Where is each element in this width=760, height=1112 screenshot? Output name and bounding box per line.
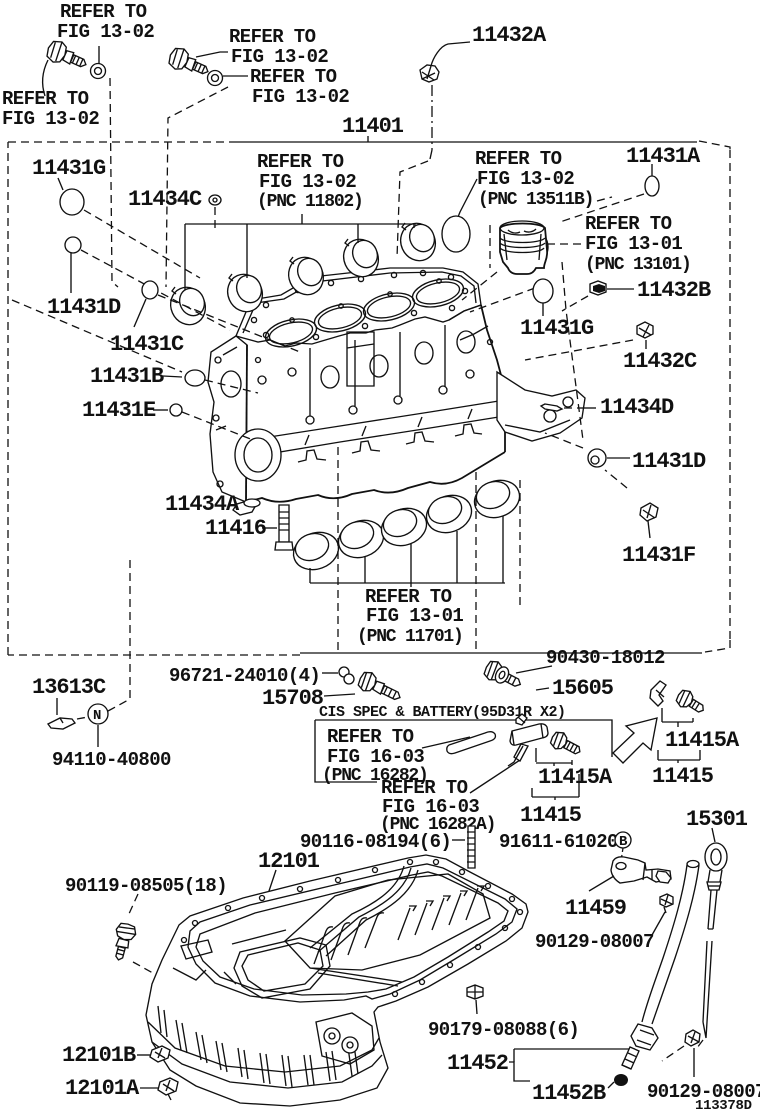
svg-text:96721-24010(4): 96721-24010(4) <box>169 665 320 687</box>
svg-text:REFER TO: REFER TO <box>327 726 414 748</box>
svg-text:11431D: 11431D <box>47 295 121 320</box>
svg-text:11431A: 11431A <box>626 144 701 169</box>
svg-text:REFER TO: REFER TO <box>60 1 147 23</box>
svg-text:11431G: 11431G <box>32 156 106 181</box>
svg-text:12101A: 12101A <box>65 1076 140 1101</box>
svg-text:FIG 13-02: FIG 13-02 <box>259 171 356 193</box>
svg-text:11401: 11401 <box>342 114 404 139</box>
svg-text:90430-18012: 90430-18012 <box>546 647 665 669</box>
svg-text:11432A: 11432A <box>472 23 547 48</box>
svg-text:11431F: 11431F <box>622 543 695 568</box>
svg-text:(PNC 13511B): (PNC 13511B) <box>478 190 593 210</box>
svg-text:11434D: 11434D <box>600 395 674 420</box>
svg-text:11415: 11415 <box>520 803 582 828</box>
svg-text:11432C: 11432C <box>623 349 697 374</box>
svg-text:11431B: 11431B <box>90 364 164 389</box>
svg-text:11415A: 11415A <box>538 765 613 790</box>
svg-text:REFER TO: REFER TO <box>2 88 89 110</box>
svg-text:(PNC 13101): (PNC 13101) <box>585 255 691 275</box>
svg-text:11459: 11459 <box>565 896 626 921</box>
svg-text:REFER TO: REFER TO <box>250 66 337 88</box>
svg-text:(PNC 11802): (PNC 11802) <box>257 192 363 212</box>
svg-text:13613C: 13613C <box>32 675 106 700</box>
svg-text:11452: 11452 <box>447 1051 508 1076</box>
svg-text:11415A: 11415A <box>665 728 740 753</box>
svg-text:FIG 13-01: FIG 13-01 <box>366 605 463 627</box>
svg-text:11416: 11416 <box>205 516 266 541</box>
svg-text:FIG 13-02: FIG 13-02 <box>477 168 574 190</box>
svg-text:FIG 13-02: FIG 13-02 <box>252 86 349 108</box>
svg-text:11431C: 11431C <box>110 332 184 357</box>
svg-text:113378D: 113378D <box>695 1098 752 1112</box>
svg-text:(PNC 11701): (PNC 11701) <box>357 627 463 647</box>
svg-text:90129-08007: 90129-08007 <box>535 931 654 953</box>
svg-text:15708: 15708 <box>262 686 324 711</box>
svg-text:90116-08194(6): 90116-08194(6) <box>300 831 451 853</box>
svg-text:11431E: 11431E <box>82 398 156 423</box>
svg-text:90119-08505(18): 90119-08505(18) <box>65 875 227 897</box>
svg-text:11434A: 11434A <box>165 492 240 517</box>
svg-text:REFER TO: REFER TO <box>229 26 316 48</box>
svg-text:11431G: 11431G <box>520 316 594 341</box>
svg-text:REFER TO: REFER TO <box>257 151 344 173</box>
svg-text:12101: 12101 <box>258 849 320 874</box>
svg-text:11452B: 11452B <box>532 1081 606 1106</box>
svg-text:N: N <box>93 708 101 724</box>
svg-text:15605: 15605 <box>552 676 614 701</box>
svg-text:12101B: 12101B <box>62 1043 136 1068</box>
svg-text:11415: 11415 <box>652 764 714 789</box>
svg-text:REFER TO: REFER TO <box>585 213 672 235</box>
svg-text:11431D: 11431D <box>632 449 706 474</box>
svg-text:11434C: 11434C <box>128 187 202 212</box>
svg-text:94110-40800: 94110-40800 <box>52 749 171 771</box>
svg-text:FIG 13-02: FIG 13-02 <box>2 108 99 130</box>
svg-text:CIS SPEC & BATTERY(95D31R X2): CIS SPEC & BATTERY(95D31R X2) <box>319 704 566 721</box>
svg-text:15301: 15301 <box>686 807 748 832</box>
svg-text:B: B <box>619 834 628 850</box>
svg-text:91611-61020: 91611-61020 <box>499 831 618 853</box>
svg-text:REFER TO: REFER TO <box>475 148 562 170</box>
svg-text:90179-08088(6): 90179-08088(6) <box>428 1019 579 1041</box>
svg-text:FIG 16-03: FIG 16-03 <box>327 746 424 768</box>
svg-text:FIG 13-01: FIG 13-01 <box>585 233 682 255</box>
svg-text:FIG 13-02: FIG 13-02 <box>231 46 328 68</box>
svg-text:11432B: 11432B <box>637 278 711 303</box>
svg-text:FIG 13-02: FIG 13-02 <box>57 21 154 43</box>
